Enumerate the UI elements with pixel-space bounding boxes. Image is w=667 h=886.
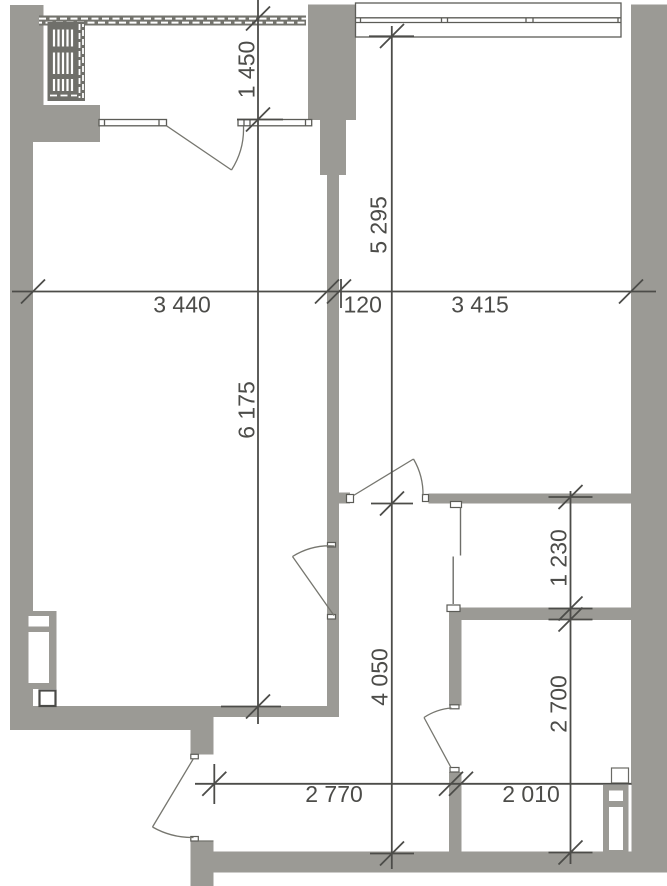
svg-text:1 230: 1 230 [546,529,572,587]
svg-text:2 010: 2 010 [502,781,560,807]
svg-text:2 770: 2 770 [305,781,363,807]
svg-text:1 450: 1 450 [234,41,260,99]
svg-text:6 175: 6 175 [234,381,260,439]
svg-text:4 050: 4 050 [367,648,393,706]
svg-text:2 700: 2 700 [546,675,572,733]
svg-text:120: 120 [344,292,382,318]
svg-text:3 415: 3 415 [451,292,509,318]
svg-text:5 295: 5 295 [366,196,392,254]
svg-text:3 440: 3 440 [153,292,211,318]
